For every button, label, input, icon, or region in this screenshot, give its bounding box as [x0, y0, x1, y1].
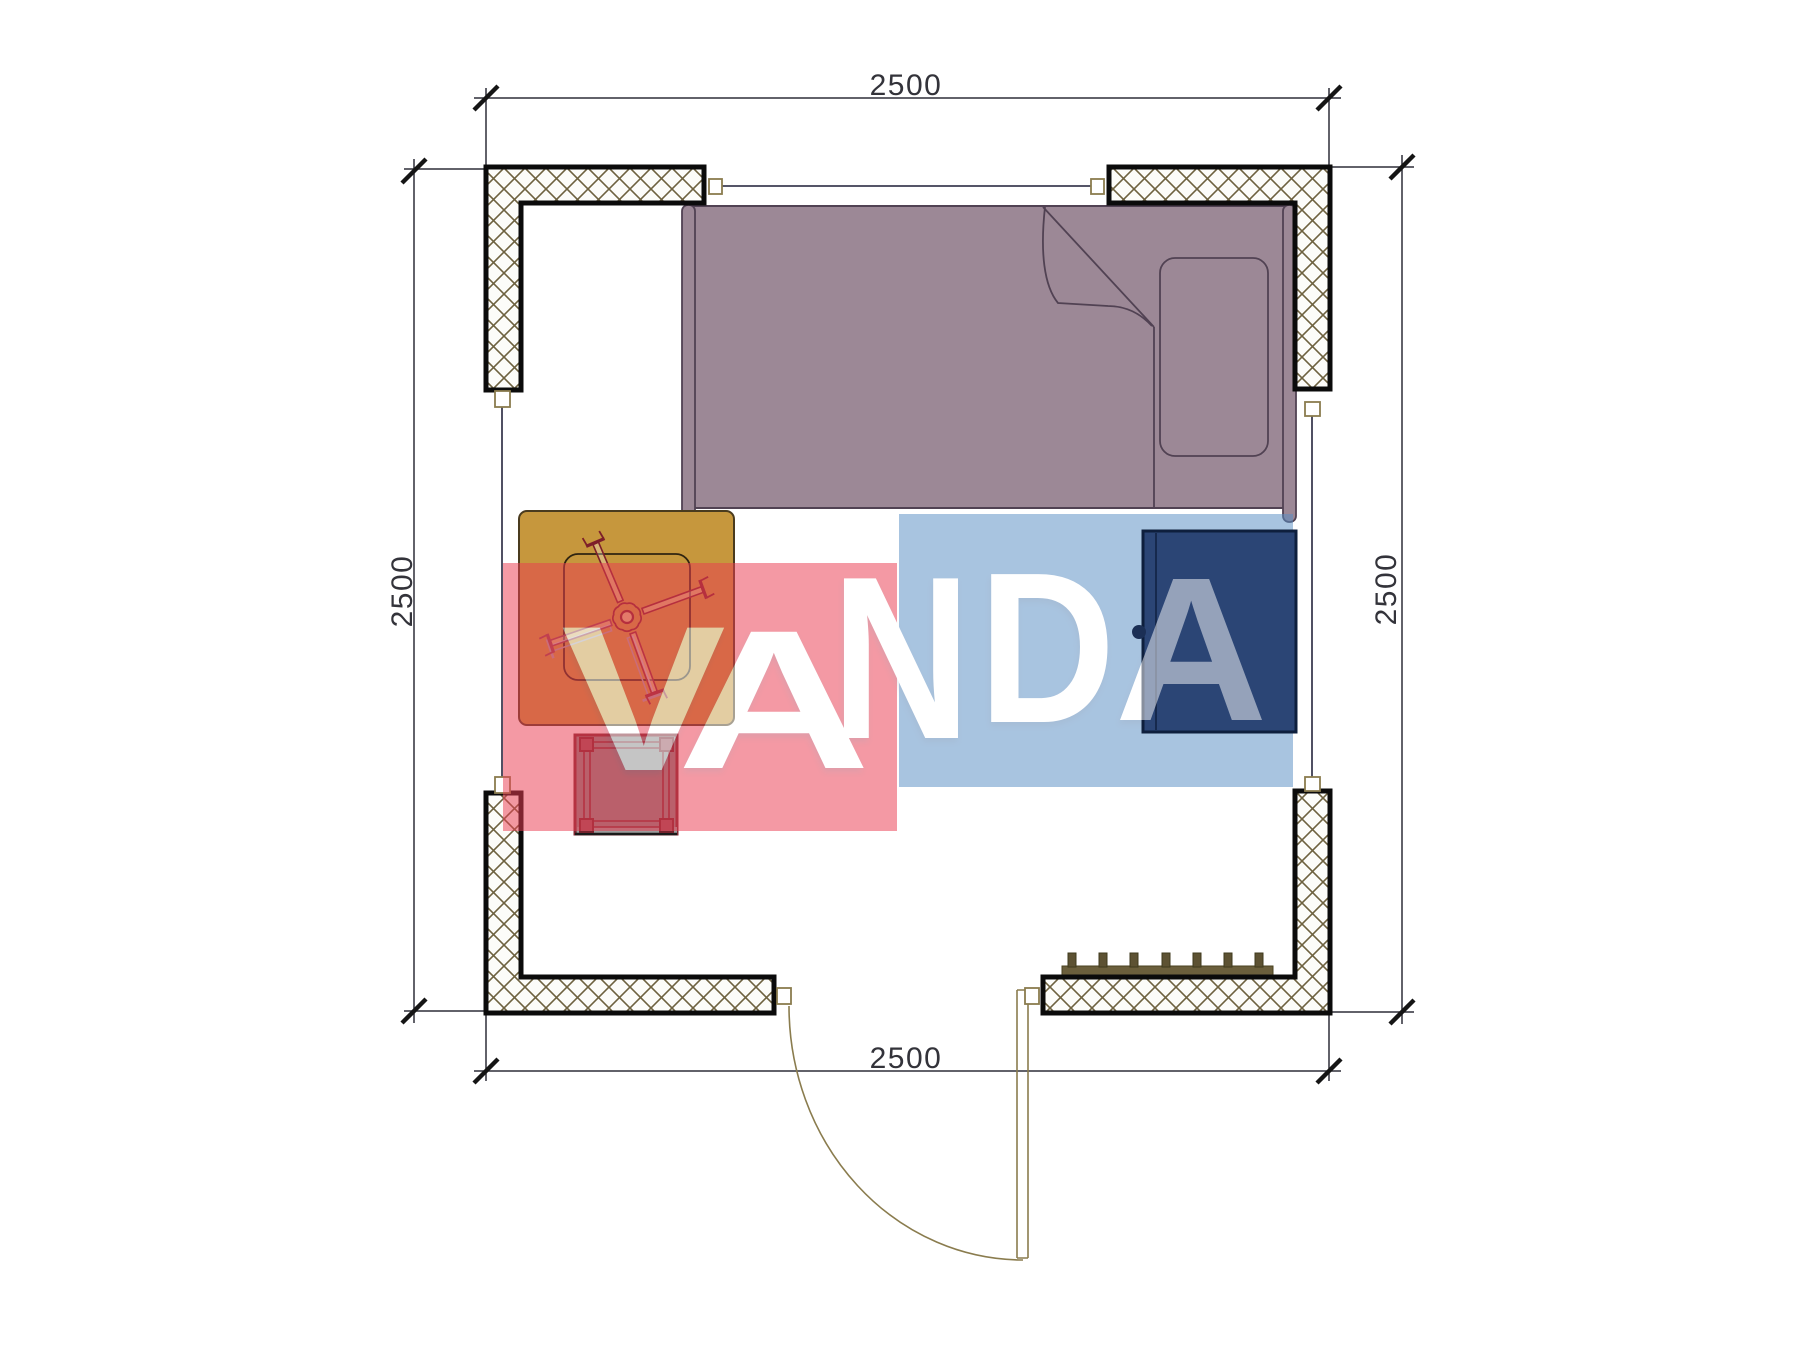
svg-text:N: N	[831, 529, 971, 788]
svg-text:A: A	[1115, 535, 1268, 764]
svg-text:2500: 2500	[870, 69, 943, 102]
svg-text:D: D	[979, 527, 1116, 768]
svg-text:2500: 2500	[870, 1042, 943, 1075]
svg-text:2500: 2500	[1370, 553, 1403, 626]
svg-text:2500: 2500	[386, 555, 419, 628]
